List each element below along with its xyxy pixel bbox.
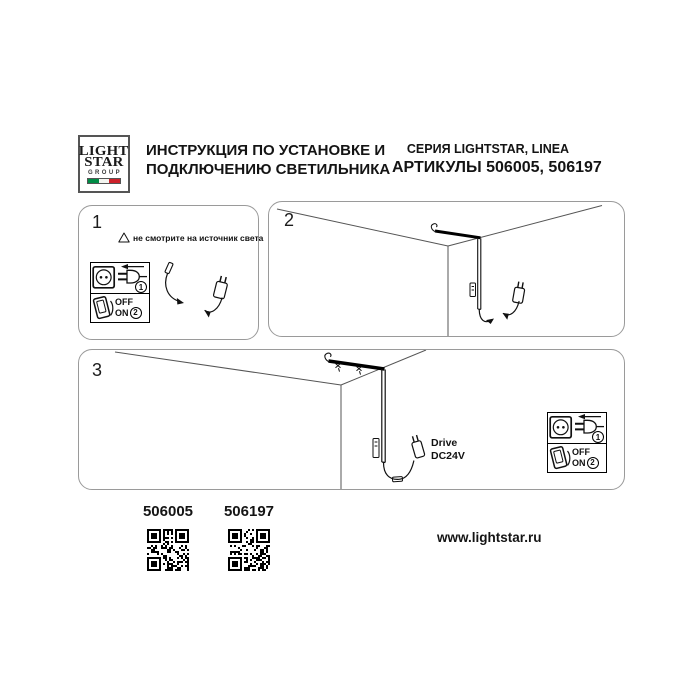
instruction-sheet: LIGHT STAR GROUP ИНСТРУКЦИЯ ПО УСТАНОВКЕ… <box>0 0 700 700</box>
off-label: OFF <box>572 447 599 457</box>
luminaire <box>470 238 481 309</box>
flag-green-stripe <box>88 179 99 183</box>
series-line: СЕРИЯ LIGHTSTAR, LINEA <box>392 142 584 156</box>
switch-labels: OFF ON 2 <box>572 447 599 469</box>
loose-cable-sketch <box>165 262 185 306</box>
legend-plug-cell: 1 <box>548 413 606 443</box>
adapter-sketch <box>203 275 230 317</box>
room-corner-lines <box>115 350 426 489</box>
page-title: ИНСТРУКЦИЯ ПО УСТАНОВКЕ И ПОДКЛЮЧЕНИЮ СВ… <box>146 141 390 179</box>
ceiling-track <box>431 224 480 238</box>
step-3-panel: 3 <box>78 349 625 490</box>
step-1-panel: 1 не смотрите на источник света <box>78 205 259 340</box>
logo-word-group: GROUP <box>86 170 122 176</box>
power-cable <box>384 461 414 482</box>
luminaire <box>373 369 385 463</box>
power-cable <box>479 310 495 325</box>
series-info: СЕРИЯ LIGHTSTAR, LINEA АРТИКУЛЫ 506005, … <box>392 142 584 177</box>
legend-switch-cell: OFF ON 2 <box>548 443 606 472</box>
step-2-drawing <box>269 202 624 336</box>
flag-white-stripe <box>99 179 110 183</box>
rocker-switch-icon <box>548 444 572 472</box>
article-left-label: 506005 <box>140 503 196 520</box>
room-corner-lines <box>277 206 602 337</box>
qr-code-506005 <box>145 527 191 573</box>
step-marker-2: 2 <box>587 457 599 469</box>
flag-red-stripe <box>109 179 120 183</box>
step-2-panel: 2 <box>268 201 625 337</box>
drive-label-line-1: Drive <box>431 437 465 450</box>
article-right-label: 506197 <box>221 503 277 520</box>
power-adapter <box>501 281 526 320</box>
drive-adapter <box>410 434 425 458</box>
title-line-1: ИНСТРУКЦИЯ ПО УСТАНОВКЕ И <box>146 141 390 160</box>
website-url: www.lightstar.ru <box>437 530 542 545</box>
step-1-drawing <box>79 206 258 339</box>
on-label: ON <box>572 458 586 468</box>
step-3-drawing <box>79 350 624 489</box>
italian-flag-icon <box>87 178 121 184</box>
qr-code-506197 <box>226 527 272 573</box>
connection-legend: 1 OFF ON 2 <box>547 412 607 473</box>
logo-word-star: STAR <box>84 156 123 168</box>
article-right-block: 506197 <box>221 503 277 578</box>
drive-label: Drive DC24V <box>431 437 465 463</box>
drive-label-line-2: DC24V <box>431 450 465 463</box>
step-marker-1: 1 <box>592 431 604 443</box>
ceiling-track <box>325 353 385 369</box>
lightstar-logo: LIGHT STAR GROUP <box>78 135 130 193</box>
title-line-2: ПОДКЛЮЧЕНИЮ СВЕТИЛЬНИКА <box>146 160 390 179</box>
articles-line: АРТИКУЛЫ 506005, 506197 <box>392 159 584 177</box>
article-left-block: 506005 <box>140 503 196 578</box>
